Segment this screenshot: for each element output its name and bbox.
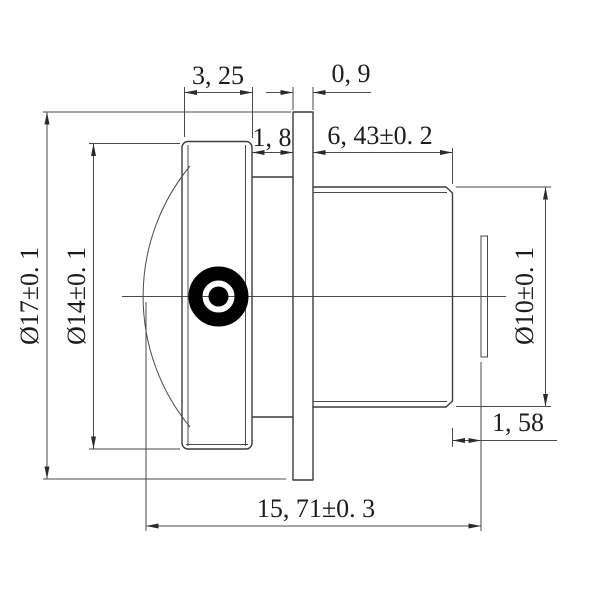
dim-flange-thickness: 0, 9 xyxy=(266,59,371,110)
drawing-canvas: 3, 25 0, 9 1, 8 6, 43±0. 2 Ø17±0. 1 xyxy=(0,0,600,600)
dim-rear-diameter-label: Ø10±0. 1 xyxy=(510,247,539,345)
dim-back-distance: 1, 58 xyxy=(453,362,558,531)
dim-rear-length-label: 6, 43±0. 2 xyxy=(327,121,432,150)
dim-front-diameter-label: Ø14±0. 1 xyxy=(62,247,91,345)
dim-front-length-label: 3, 25 xyxy=(192,61,244,90)
dim-back-distance-label: 1, 58 xyxy=(492,408,544,437)
technical-drawing: 3, 25 0, 9 1, 8 6, 43±0. 2 Ø17±0. 1 xyxy=(0,0,600,600)
dim-outer-diameter-label: Ø17±0. 1 xyxy=(15,247,44,345)
dim-total-length-label: 15, 71±0. 3 xyxy=(257,494,375,523)
dim-front-length: 3, 25 xyxy=(185,61,253,138)
dim-outer-diameter: Ø17±0. 1 xyxy=(15,112,291,479)
dim-flange-thickness-label: 0, 9 xyxy=(332,59,371,88)
dim-rear-length: 6, 43±0. 2 xyxy=(313,121,453,184)
dim-neck-length: 1, 8 xyxy=(252,123,293,155)
bullseye-icon xyxy=(196,274,242,320)
dim-neck-length-label: 1, 8 xyxy=(253,123,292,152)
